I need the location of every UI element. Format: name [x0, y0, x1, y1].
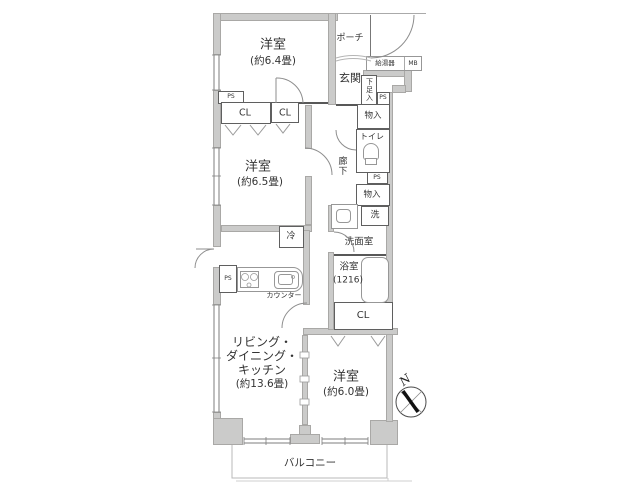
toilet-seat: [365, 158, 377, 165]
pillar-bottom-right: [370, 420, 398, 445]
front-door-leaf: [370, 15, 371, 58]
toilet-label: トイレ: [360, 133, 384, 141]
wall-hall-left-a: [305, 105, 312, 149]
wall-left-a: [213, 13, 221, 55]
closet1-label: CL: [239, 108, 251, 118]
wall-right-step-h: [392, 85, 406, 93]
ps-label-d: PS: [224, 276, 231, 282]
compass-north-label: N: [396, 371, 414, 389]
vanity-bowl: [336, 209, 351, 223]
bedroom1-size: (約6.4畳): [250, 56, 296, 67]
ps-label-c: PS: [373, 175, 380, 181]
wall-washroom-left: [303, 230, 310, 305]
floorplan: 洋室 (約6.4畳) ポーチ 玄関 給湯器 MB 下足入 PS 物入 トイレ P…: [0, 0, 625, 500]
bedroom2-size: (約6.5畳): [237, 177, 283, 188]
ldk-line2: ダイニング・: [226, 350, 298, 362]
wall-ldk-bedroom3-divider: [302, 335, 308, 425]
refrigerator-label: 冷: [286, 233, 295, 242]
wall-hall-left-b: [305, 176, 312, 225]
ldk-line3: キッチン: [238, 364, 286, 376]
bedroom2-name: 洋室: [245, 161, 271, 174]
water-heater-label: 給湯器: [375, 60, 395, 67]
balcony-label: バルコニー: [284, 458, 336, 469]
hallway-label: 廊下: [337, 156, 346, 176]
compass-icon: N: [396, 371, 426, 417]
wall-bedroom1-right: [328, 13, 336, 105]
ps-label-b: PS: [379, 95, 386, 101]
porch-label: ポーチ: [336, 35, 363, 44]
bath-size: (1216): [333, 277, 363, 286]
wall-left-c: [213, 205, 221, 247]
storage-label-b: 物入: [363, 191, 380, 200]
bedroom3-size: (約6.0畳): [323, 387, 369, 398]
closet3-label: CL: [357, 311, 370, 321]
bath-name: 浴室: [339, 262, 358, 272]
ldk-line1: リビング・: [232, 336, 292, 348]
meter-box-label: MB: [408, 61, 417, 67]
shoe-cabinet-label: 下足入: [366, 78, 373, 102]
wall-washroom-bath: [334, 254, 386, 256]
bedroom1-name: 洋室: [260, 39, 286, 52]
pillar-bottom-left: [213, 418, 243, 445]
porch-top-line: [336, 13, 426, 14]
entrance-label: 玄関: [339, 73, 361, 84]
bathtub-icon: [361, 257, 389, 303]
storage-label-a: 物入: [364, 112, 381, 121]
washer-label: 洗: [370, 212, 379, 221]
wall-top: [213, 13, 338, 21]
counter-label: カウンター: [267, 293, 302, 300]
stove-icon: [240, 271, 259, 288]
ps-label-a: PS: [227, 94, 234, 100]
water-heater-divider: [404, 57, 405, 70]
plan-overlay: N: [0, 0, 625, 500]
wall-t-base: [290, 434, 320, 444]
sink-bowl: [278, 274, 293, 285]
washroom-label: 洗面室: [345, 237, 374, 247]
ldk-size: (約13.6畳): [236, 379, 289, 390]
bedroom3-name: 洋室: [333, 371, 359, 384]
closet2-label: CL: [279, 108, 291, 118]
